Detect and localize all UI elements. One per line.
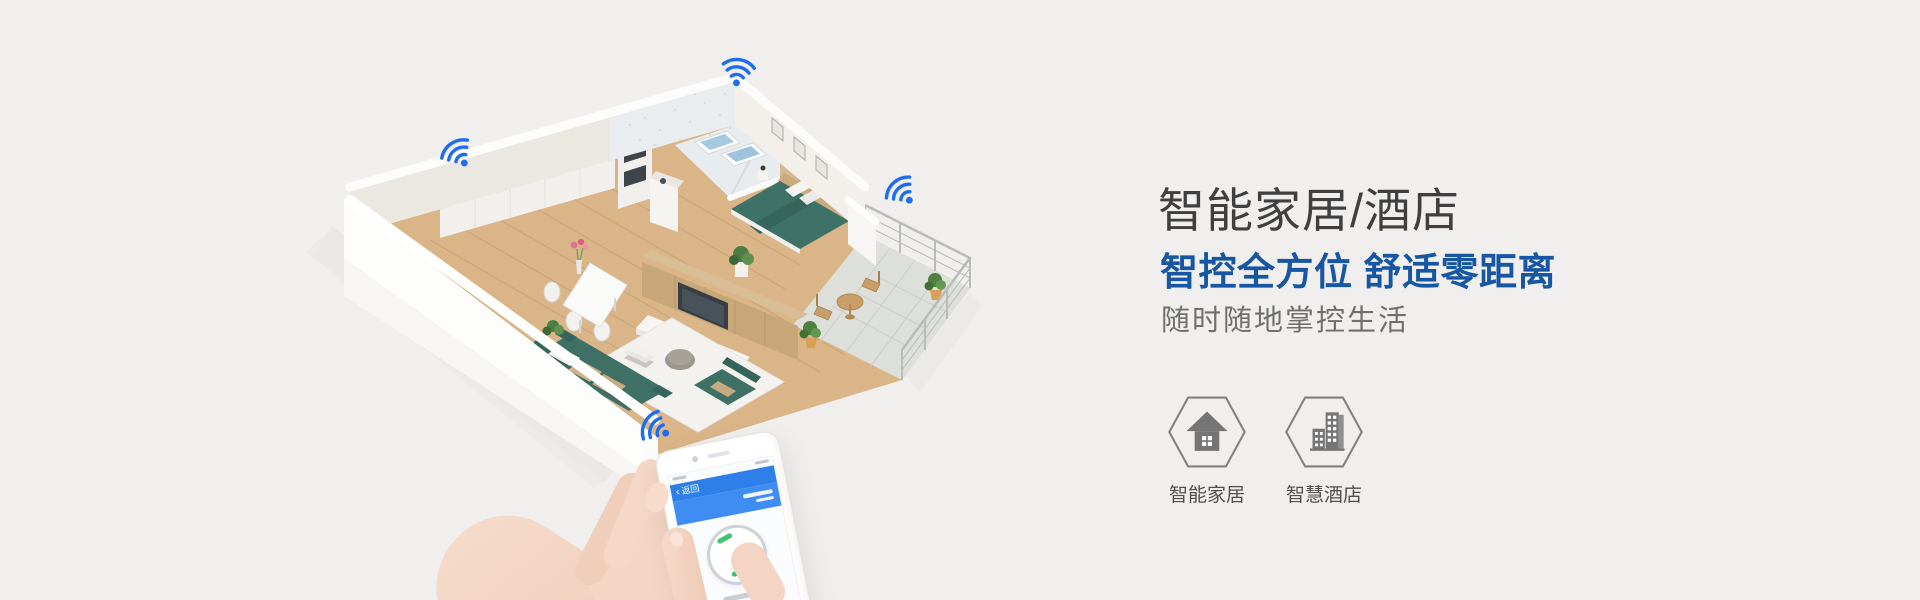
home-icon [1166,391,1248,473]
smart-home-hero-banner: ‹ 返回 [0,0,1920,600]
front-camera-icon [692,456,699,463]
feature-list: 智能家居 [1166,391,1365,507]
hero-subtitle: 随时随地掌控生活 [1161,297,1761,339]
feature-smart-hotel[interactable]: 智慧酒店 [1283,391,1365,507]
feature-smart-home[interactable]: 智能家居 [1166,391,1248,507]
hotel-building-icon [1283,391,1365,473]
earpiece-speaker [707,450,729,458]
page-title: 智能家居/酒店 [1158,172,1758,241]
wifi-bathroom-icon [718,54,758,91]
feature-label-smart-hotel: 智慧酒店 [1286,480,1362,507]
hero-headline: 智控全方位 舒适零距离 [1160,241,1760,296]
feature-label-smart-home: 智能家居 [1169,480,1245,507]
coffee-maker [660,178,666,184]
